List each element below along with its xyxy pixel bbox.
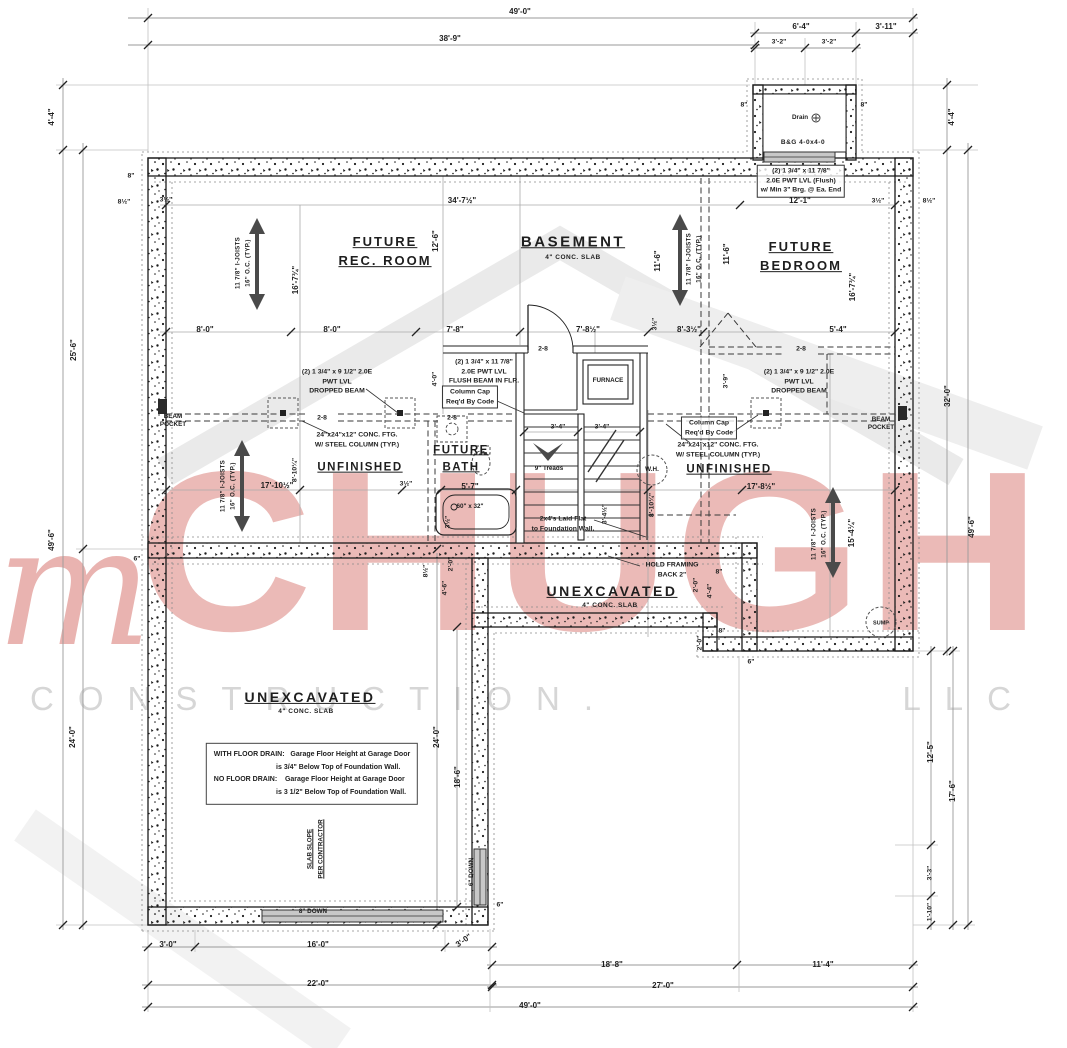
footing-note-left: 24"x24"x12" CONC. FTG. W/ STEEL COLUMN (…	[315, 430, 399, 449]
dim-label: 12'-6"	[431, 230, 441, 252]
dim-label: 12'-5"	[926, 741, 936, 763]
room-label-unexcavated-strip: UNEXCAVATED	[547, 582, 678, 600]
dim-label: 8½"	[118, 199, 131, 208]
beam-pocket-label-left: BEAM POCKET	[160, 413, 186, 429]
step-down-label-bottom: 8" DOWN	[299, 908, 327, 916]
dim-label: 6'-4"	[792, 22, 809, 32]
dim-label: 11'-6"	[722, 243, 732, 264]
dim-label: 3'-9"	[723, 374, 732, 389]
dim-label: 3½"	[400, 481, 413, 490]
dim-label: 7'-8"	[446, 325, 463, 335]
dim-label: 2'-0"	[697, 636, 706, 651]
sump-label: SUMP	[873, 620, 889, 627]
dim-overall-width-top: 49'-0"	[509, 7, 531, 17]
room-label-unfinished-right: UNFINISHED	[686, 462, 771, 479]
step-down-label-side: 6" DOWN	[468, 858, 476, 886]
garage-floor-note: WITH FLOOR DRAIN: Garage Floor Height at…	[206, 743, 418, 805]
footing-note-right: 24"x24"x12" CONC. FTG. W/ STEEL COLUMN (…	[676, 440, 760, 459]
dim-label: 2'-0"	[448, 557, 457, 572]
dim-label: 17'-6"	[948, 780, 958, 802]
floor-plan-sheet: m CHUGH CONSTRUCTION. LLC	[0, 0, 1067, 1048]
dim-label: 6"	[747, 659, 754, 668]
dim-label: 3½"	[445, 516, 454, 529]
slab-slope-note: SLAB SLOPE PER CONTRACTOR	[305, 819, 326, 878]
room-label-future-bath: FUTURE BATH	[433, 442, 489, 475]
dim-label: 2-8	[796, 346, 806, 355]
dim-overall-width-bottom: 49'-0"	[519, 1001, 541, 1011]
drain-label: Drain	[792, 114, 808, 122]
dim-label: 4" CONC. SLAB	[278, 708, 333, 716]
dim-label: 2-8	[447, 415, 457, 424]
dim-label: 11'-4"	[812, 960, 833, 970]
dim-label: 8½"	[923, 198, 936, 207]
dim-label: 1'-10"	[927, 903, 936, 921]
dim-label: 18'-8"	[601, 960, 623, 970]
dim-label: 3'-4½"	[602, 504, 611, 524]
joist-note: 11 7/8" I-JOISTS 16" O.C. (TYP.)	[809, 508, 828, 560]
dim-label: 24'-0"	[68, 726, 78, 748]
dim-label: 8"	[718, 628, 725, 637]
dim-label: 8'-0"	[196, 325, 213, 335]
dim-label: 3'-11"	[875, 22, 896, 32]
dim-label: 11'-6"	[653, 250, 663, 271]
dim-label: 17'-10½"	[261, 481, 294, 491]
dim-label: 2'-0"	[693, 578, 702, 593]
dim-label: 16'-0"	[307, 940, 329, 950]
dim-label: 7'-8½"	[576, 325, 600, 335]
dim-label: 18'-6"	[453, 766, 463, 788]
egress-window-label: B&G 4-0x4-0	[781, 139, 825, 147]
room-label-unexcavated-garage: UNEXCAVATED	[245, 688, 376, 706]
room-label-unfinished-left: UNFINISHED	[317, 460, 402, 477]
dim-label: 8'-3½"	[677, 325, 701, 335]
dim-label: 4" CONC. SLAB	[545, 254, 600, 262]
dim-label: 8"	[860, 102, 867, 111]
dim-label: 49'-6"	[967, 516, 977, 538]
dim-label: 17'-8½"	[747, 482, 775, 492]
room-label-future-bedroom: FUTURE BEDROOM	[760, 238, 842, 276]
column-cap-note-left: Column Cap Req'd By Code	[442, 385, 498, 408]
joist-note: 11 7/8" I-JOISTS 16" O.C. (TYP.)	[684, 233, 703, 285]
dim-label: 32'-0"	[943, 385, 953, 407]
dim-label: 3'-4"	[551, 424, 566, 433]
dim-label: 12'-1"	[789, 196, 811, 206]
flush-beam-note: (2) 1 3/4" x 11 7/8" 2.0E PWT LVL FLUSH …	[449, 358, 519, 387]
dim-label: 4'-6"	[442, 581, 451, 596]
dim-label: 4'-4"	[947, 108, 957, 125]
tub-size-label: 60" x 32"	[457, 503, 484, 511]
dim-label: 16'-7¾"	[848, 273, 858, 301]
dim-label: 34'-7½"	[448, 196, 476, 206]
dim-label: 6"	[133, 556, 140, 565]
dim-label: 3'-0"	[454, 932, 474, 950]
joist-note: 11 7/8" I-JOISTS 16" O.C. (TYP.)	[218, 460, 237, 512]
dim-label: 8'-10¼"	[292, 458, 301, 482]
dropped-beam-note-left: (2) 1 3/4" x 9 1/2" 2.0E PWT LVL DROPPED…	[302, 368, 372, 397]
dim-label: 4'-0"	[432, 372, 441, 387]
dim-label: 3'-2"	[822, 39, 837, 48]
beam-pocket-label-right: BEAM POCKET	[868, 416, 894, 432]
dim-label: 3½"	[652, 318, 661, 331]
dim-label: 38'-9"	[439, 34, 461, 44]
room-label-basement: BASEMENT	[521, 232, 625, 252]
dim-label: 8'-10¼"	[649, 493, 658, 517]
dim-label: 8"	[740, 102, 747, 111]
stair-treads-label: 9" Treads	[535, 465, 564, 473]
dim-label: 5'-4"	[829, 325, 846, 335]
dim-label: 4" CONC. SLAB	[582, 602, 637, 610]
dim-label: 15'-4¼"	[847, 519, 857, 547]
dim-label: 3'-0"	[159, 940, 176, 950]
dim-label: 8"	[715, 569, 722, 578]
dim-label: 16'-7¾"	[291, 266, 301, 294]
water-heater-label: W.H.	[645, 466, 659, 474]
dim-label: 3½"	[872, 198, 885, 207]
dim-label: 6"	[496, 902, 503, 911]
dim-label: 5'-7"	[461, 482, 478, 492]
hold-framing-note: HOLD FRAMING BACK 2"	[646, 560, 699, 579]
dim-label: 3'-4"	[595, 424, 610, 433]
dim-label: 2-8	[317, 415, 327, 424]
dim-label: 8"	[127, 173, 134, 182]
dim-label: 2-8	[538, 346, 548, 355]
column-cap-note-right: Column Cap Req'd By Code	[681, 416, 737, 439]
dim-label: 25'-6"	[69, 339, 79, 361]
dim-label: 27'-0"	[652, 981, 674, 991]
dim-label: 4'-4"	[707, 584, 716, 599]
dim-label: 3'-2"	[772, 39, 787, 48]
dim-label: 8'-0"	[323, 325, 340, 335]
room-label-future-rec-room: FUTURE REC. ROOM	[338, 233, 431, 271]
joist-note: 11 7/8" I-JOISTS 16" O.C. (TYP.)	[233, 237, 252, 289]
dim-label: 3½"	[160, 197, 173, 206]
dim-label: 3'-3"	[927, 866, 936, 881]
furnace-label: FURNACE	[593, 377, 624, 385]
dim-label: 8½"	[423, 565, 432, 578]
annotation-labels: 49'-0"38'-9"6'-4"3'-11"3'-2"3'-2"8"8"Dra…	[0, 0, 1067, 1048]
dim-label: 22'-0"	[307, 979, 329, 989]
dim-label: 4'-4"	[47, 108, 57, 125]
dropped-beam-note-right: (2) 1 3/4" x 9 1/2" 2.0E PWT LVL DROPPED…	[764, 368, 834, 397]
plate-note: 2x4's Laid Flat to Foundation Wall.	[532, 514, 595, 533]
lvl-flush-note: (2) 1 3/4" x 11 7/8" 2.0E PWT LVL (Flush…	[757, 165, 845, 198]
dim-label: 24'-0"	[432, 726, 442, 748]
dim-label: 49'-6"	[47, 529, 57, 551]
